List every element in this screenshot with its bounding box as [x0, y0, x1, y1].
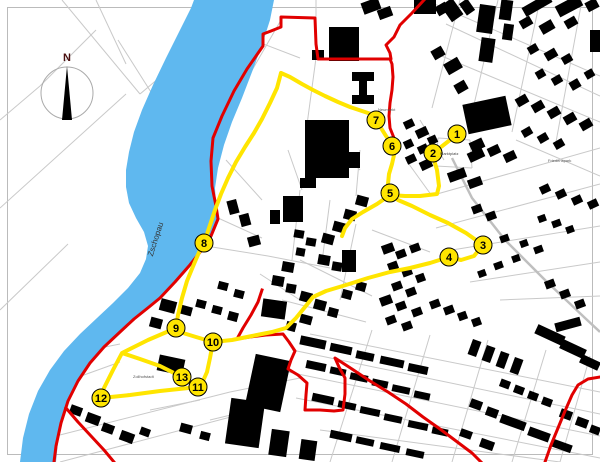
building — [541, 397, 553, 408]
building — [331, 261, 342, 272]
building — [467, 176, 483, 189]
building — [217, 281, 229, 291]
waypoint-marker-8[interactable]: 8 — [195, 234, 213, 252]
building — [355, 436, 374, 447]
street — [288, 150, 302, 190]
boundary-north-stub — [389, 59, 394, 138]
waypoint-number: 2 — [430, 148, 436, 160]
building — [271, 275, 285, 287]
building — [395, 249, 407, 260]
building — [544, 48, 559, 62]
building — [270, 210, 280, 224]
street — [372, 230, 430, 252]
street — [322, 200, 330, 262]
building — [462, 96, 511, 134]
map-canvas: 12345678910111213 N Zschopau Marktplatz … — [0, 0, 600, 462]
building — [247, 235, 261, 248]
building — [227, 311, 239, 322]
building — [211, 305, 223, 315]
building — [149, 317, 163, 330]
compass-north-label: N — [63, 52, 71, 64]
building — [538, 19, 555, 35]
building — [305, 120, 349, 178]
waypoint-number: 1 — [454, 129, 460, 141]
building — [225, 398, 265, 448]
building — [453, 80, 468, 95]
building — [551, 219, 562, 229]
building — [457, 311, 468, 322]
building — [359, 406, 380, 417]
building — [299, 314, 313, 326]
building — [261, 298, 287, 319]
building — [527, 427, 551, 443]
waypoint-number: 5 — [387, 188, 393, 200]
street — [436, 184, 600, 228]
building — [313, 299, 327, 312]
building — [352, 95, 374, 104]
waypoint-number: 3 — [480, 240, 486, 252]
waypoint-marker-3[interactable]: 3 — [474, 236, 492, 254]
building — [590, 30, 600, 52]
building — [405, 448, 424, 459]
building — [564, 16, 579, 30]
building — [503, 150, 518, 163]
street — [500, 296, 600, 300]
waypoint-number: 4 — [446, 252, 453, 264]
town-map: 12345678910111213 N Zschopau Marktplatz … — [0, 0, 600, 462]
waypoint-number: 9 — [173, 323, 179, 335]
street — [96, 0, 126, 64]
building — [555, 188, 567, 199]
building — [527, 391, 539, 402]
building — [537, 132, 550, 144]
building — [554, 317, 581, 332]
building — [521, 126, 534, 138]
waypoint-marker-12[interactable]: 12 — [92, 389, 110, 407]
waypoint-marker-7[interactable]: 7 — [367, 111, 385, 129]
building — [239, 213, 252, 227]
building — [519, 239, 529, 248]
building — [584, 0, 599, 12]
building — [381, 242, 395, 255]
building — [342, 250, 356, 272]
building — [413, 390, 430, 400]
building — [268, 429, 289, 457]
compass-needle — [62, 66, 72, 120]
waypoint-number: 7 — [373, 115, 379, 127]
building — [519, 16, 534, 30]
building — [537, 214, 547, 223]
building — [299, 439, 318, 461]
building — [359, 81, 367, 95]
building — [329, 27, 359, 61]
building — [299, 335, 326, 349]
building — [355, 195, 369, 208]
building — [513, 385, 525, 396]
building — [499, 379, 511, 390]
street — [62, 0, 140, 94]
building — [329, 343, 352, 355]
waypoint-marker-4[interactable]: 4 — [440, 248, 458, 266]
building — [401, 321, 413, 332]
building — [539, 183, 551, 194]
building — [443, 305, 455, 316]
waypoint-marker-9[interactable]: 9 — [167, 319, 185, 337]
building — [395, 301, 407, 312]
building — [485, 406, 499, 419]
neumarkt-label: Neumarkt — [378, 107, 396, 112]
friedenspark-label: Friedenspark — [548, 158, 571, 163]
waypoint-marker-10[interactable]: 10 — [204, 333, 222, 351]
building — [179, 423, 193, 435]
building — [459, 428, 473, 440]
building — [327, 307, 339, 318]
building — [471, 204, 483, 215]
building — [195, 299, 207, 309]
building — [533, 245, 544, 255]
building — [383, 413, 402, 424]
building — [285, 283, 296, 294]
building — [403, 118, 415, 129]
building — [403, 138, 415, 149]
building — [407, 363, 428, 375]
waypoint-number: 8 — [201, 238, 207, 250]
street — [218, 218, 262, 238]
building — [300, 178, 316, 188]
building — [515, 94, 530, 108]
waypoint-number: 10 — [207, 337, 219, 349]
building — [478, 37, 495, 63]
waypoint-marker-11[interactable]: 11 — [189, 378, 207, 396]
building — [139, 427, 151, 438]
building — [341, 289, 353, 300]
building — [379, 294, 393, 307]
building — [283, 196, 303, 222]
marktplatz-label: Marktplatz — [440, 151, 458, 156]
building — [468, 339, 482, 357]
building — [499, 0, 514, 21]
compass-rose: N — [41, 52, 93, 120]
building — [329, 430, 352, 442]
waypoint-number: 12 — [95, 393, 107, 405]
street — [150, 400, 200, 410]
building — [487, 144, 502, 157]
building — [493, 261, 504, 271]
building — [415, 126, 430, 139]
building — [293, 229, 304, 239]
street — [470, 262, 600, 282]
building — [348, 152, 360, 168]
building — [553, 138, 566, 150]
building — [551, 74, 564, 86]
street — [436, 166, 472, 168]
building — [321, 233, 335, 246]
building — [565, 225, 575, 234]
waypoint-number: 6 — [389, 141, 395, 153]
building — [551, 439, 573, 453]
building — [295, 247, 305, 256]
building — [226, 199, 239, 215]
building — [531, 100, 546, 114]
building — [496, 351, 510, 369]
building — [415, 273, 426, 284]
building — [159, 298, 178, 314]
waypoint-marker-6[interactable]: 6 — [383, 137, 401, 155]
waypoint-number: 13 — [176, 372, 188, 384]
building — [547, 106, 562, 120]
building — [391, 281, 403, 292]
building — [385, 315, 397, 326]
building — [352, 72, 374, 81]
building — [305, 237, 316, 247]
building — [579, 118, 594, 132]
building — [405, 287, 417, 298]
street — [0, 86, 40, 120]
building — [479, 438, 495, 451]
building — [575, 416, 589, 429]
building — [233, 289, 245, 299]
building — [85, 412, 102, 426]
building — [430, 46, 445, 61]
building — [411, 307, 423, 318]
building — [119, 430, 136, 444]
street — [206, 246, 268, 256]
waypoint-number: 11 — [192, 382, 204, 394]
waypoint-marker-1[interactable]: 1 — [448, 125, 466, 143]
building — [443, 57, 463, 75]
building — [563, 112, 578, 126]
building — [477, 269, 487, 278]
building — [305, 360, 326, 372]
waypoint-marker-13[interactable]: 13 — [173, 368, 191, 386]
building — [199, 431, 211, 441]
building — [571, 194, 583, 205]
building — [568, 78, 581, 91]
waypoint-marker-5[interactable]: 5 — [381, 184, 399, 202]
building — [281, 261, 295, 273]
street — [0, 244, 68, 310]
building — [391, 384, 410, 395]
building — [499, 414, 527, 431]
building — [471, 317, 482, 328]
building — [379, 356, 404, 369]
building — [317, 254, 331, 266]
building — [587, 198, 599, 209]
zollhofstadt-label: Zollhofstadt — [133, 374, 155, 379]
street — [226, 160, 262, 200]
building — [355, 350, 374, 362]
building — [510, 357, 524, 375]
building — [405, 153, 417, 164]
building — [469, 398, 483, 411]
building — [429, 299, 441, 310]
